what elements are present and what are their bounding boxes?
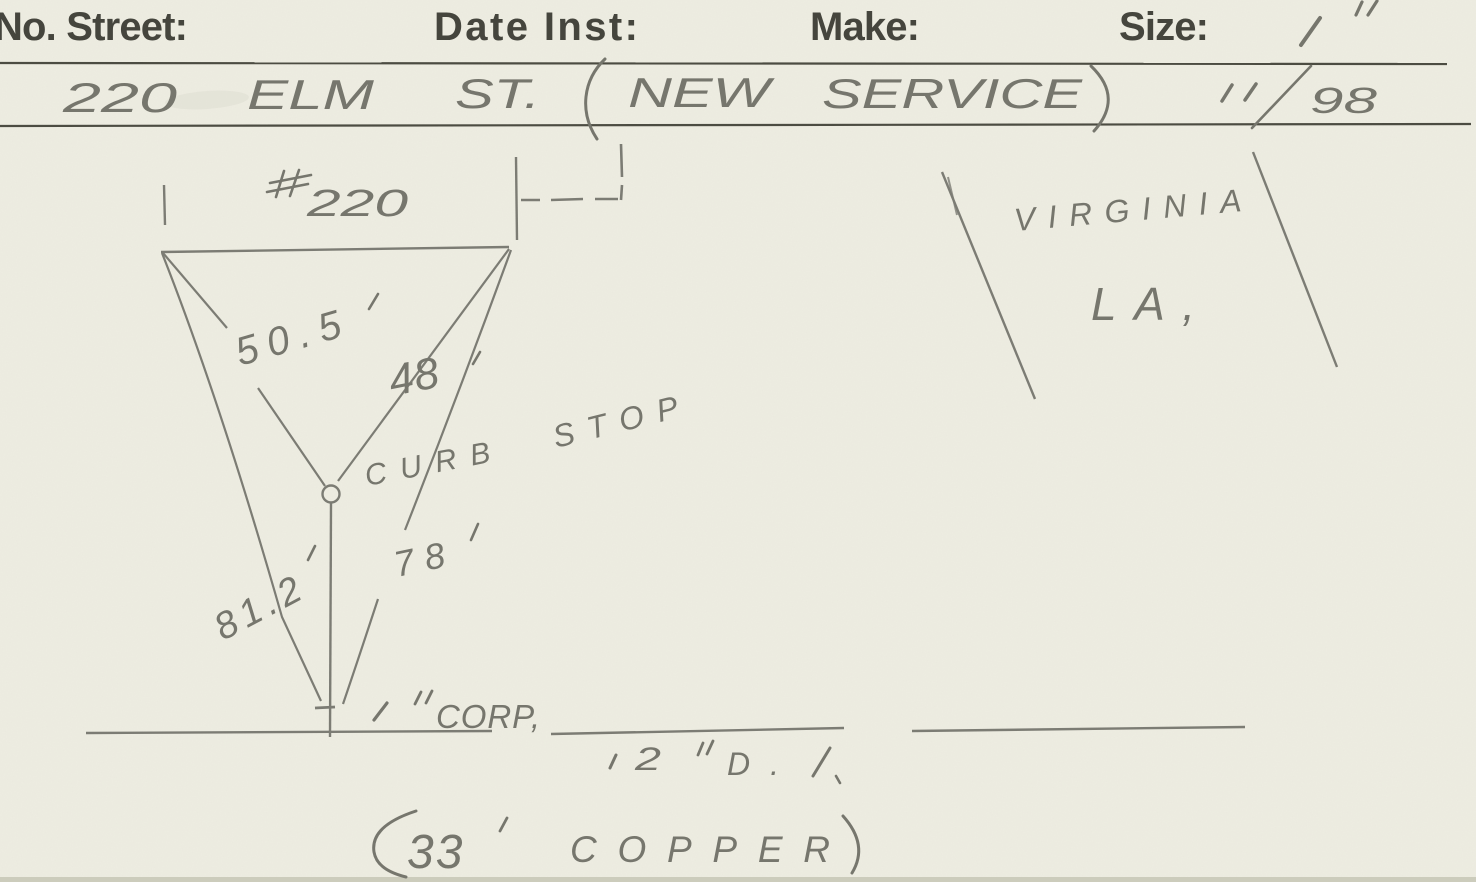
svg-text:SERVICE: SERVICE [822,70,1083,117]
svg-text:CORP,: CORP, [436,698,540,735]
svg-text:33: 33 [407,826,464,879]
svg-text:98: 98 [1310,80,1377,121]
svg-text:NEW: NEW [628,69,775,116]
svg-text:48: 48 [385,348,444,406]
svg-text:No. Street:: No. Street: [0,5,188,49]
svg-text:220: 220 [61,74,178,121]
svg-text:220: 220 [305,183,408,225]
svg-text:ST.: ST. [455,70,540,117]
svg-text:ELM: ELM [247,71,374,118]
svg-text:Make:: Make: [810,5,920,49]
svg-text:2: 2 [634,741,662,777]
svg-text:Size:: Size: [1119,5,1209,49]
